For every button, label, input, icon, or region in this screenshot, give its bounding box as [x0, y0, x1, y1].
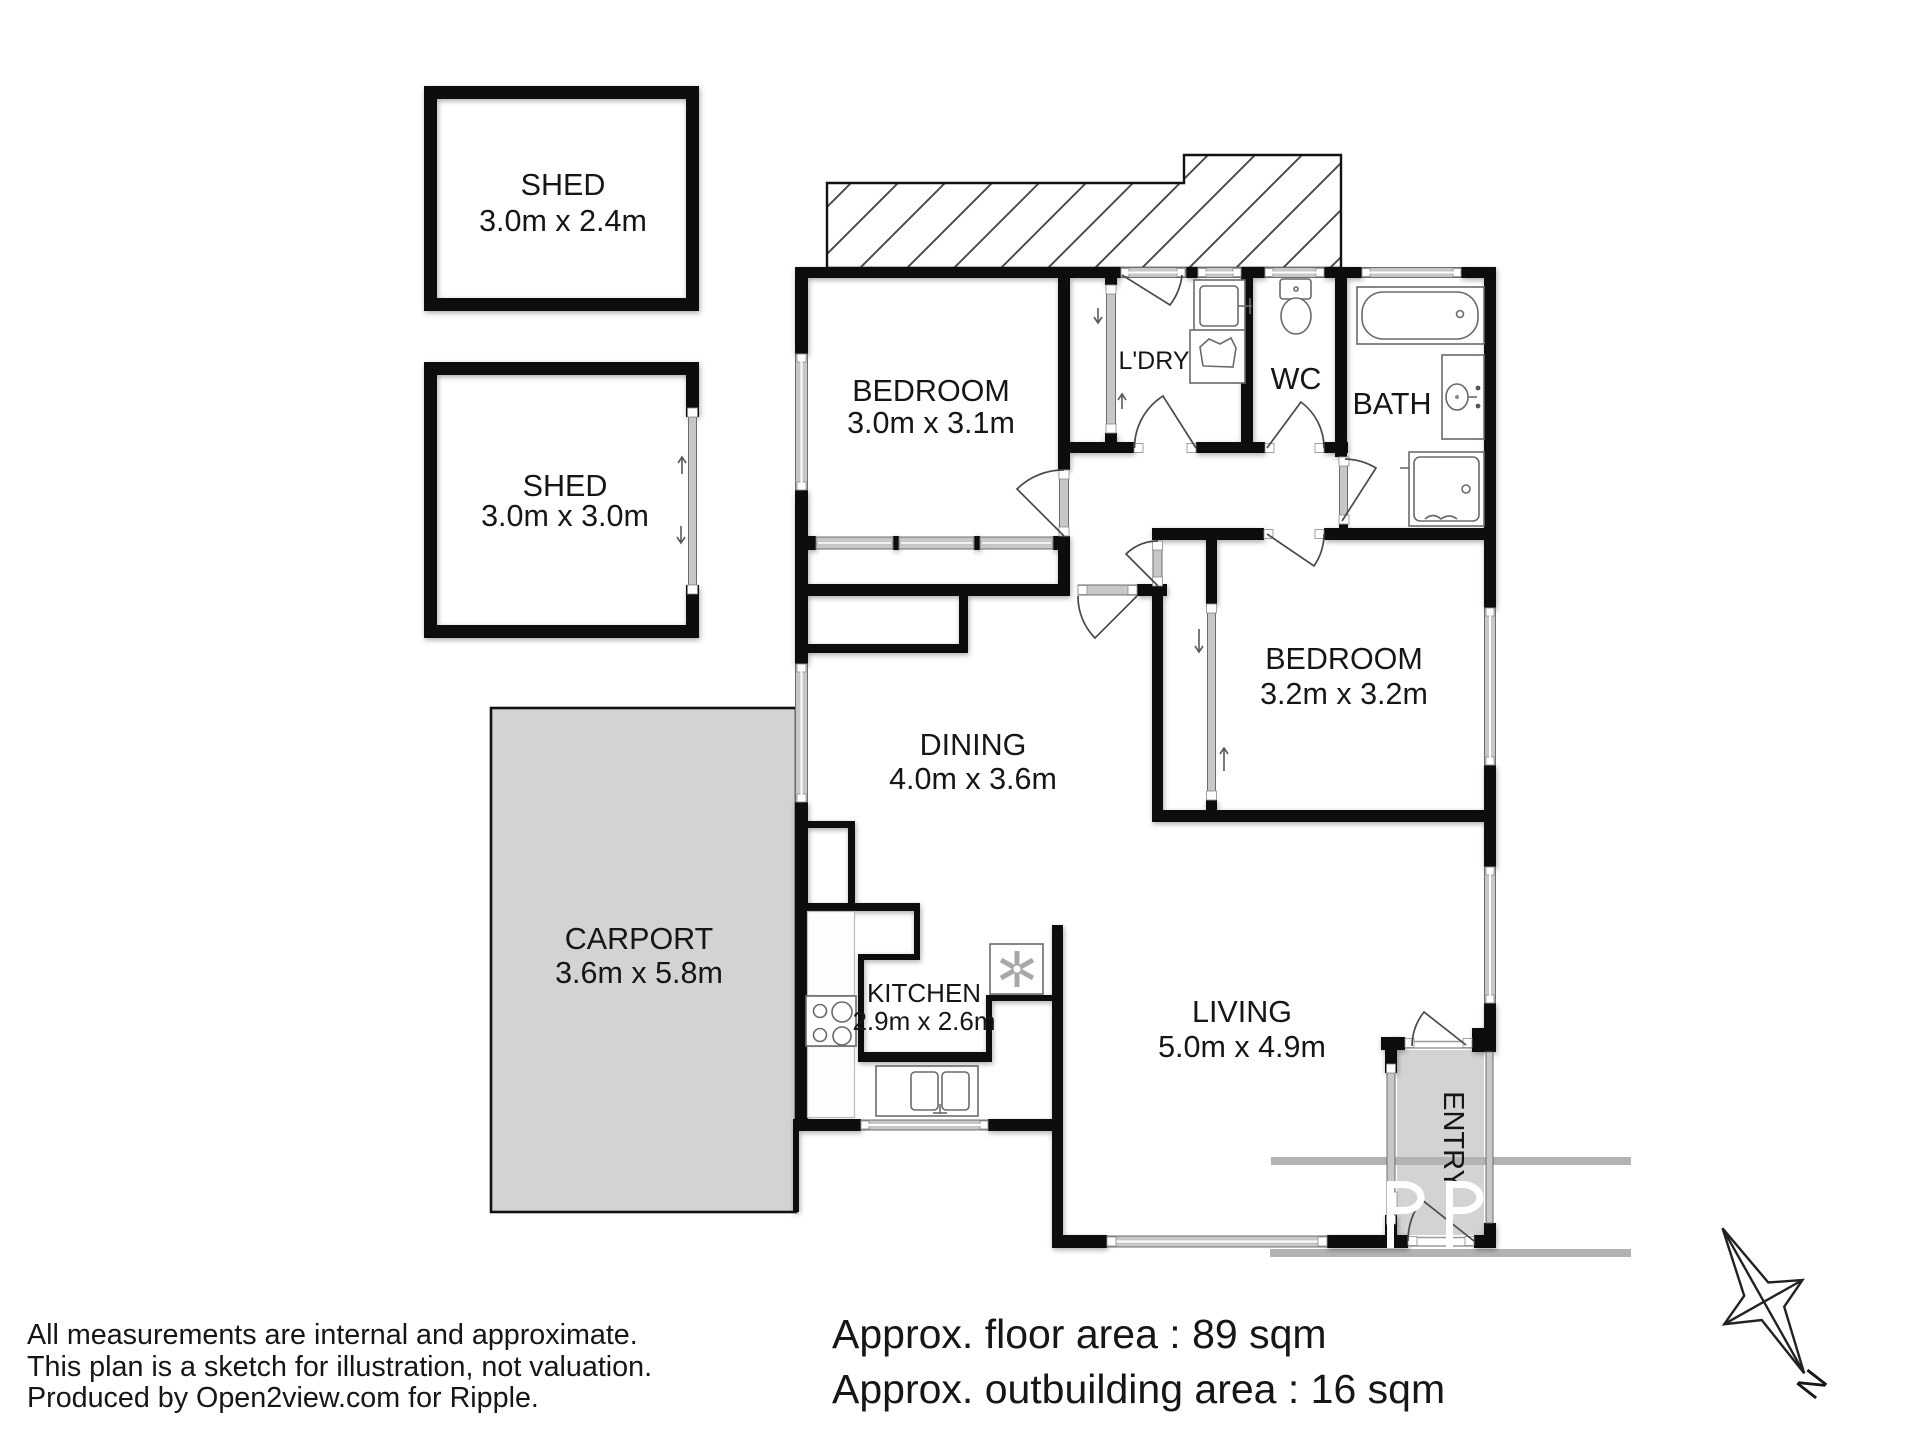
- svg-text:BATH: BATH: [1352, 387, 1431, 421]
- svg-text:SHED: SHED: [521, 168, 606, 202]
- svg-text:Produced by Open2view.com for: Produced by Open2view.com for Ripple.: [27, 1382, 539, 1414]
- svg-text:ENTRY: ENTRY: [1437, 1091, 1469, 1189]
- svg-text:KITCHEN: KITCHEN: [867, 978, 981, 1008]
- svg-text:All measurements are internal: All measurements are internal and approx…: [27, 1319, 638, 1351]
- svg-text:3.0m x 3.1m: 3.0m x 3.1m: [847, 406, 1015, 440]
- svg-text:3.0m x 3.0m: 3.0m x 3.0m: [481, 499, 649, 533]
- svg-text:Approx. floor area : 89 sqm: Approx. floor area : 89 sqm: [832, 1311, 1327, 1357]
- svg-text:Approx. outbuilding area : 16: Approx. outbuilding area : 16 sqm: [832, 1366, 1445, 1412]
- svg-text:3.0m x 2.4m: 3.0m x 2.4m: [479, 204, 647, 238]
- svg-text:SHED: SHED: [523, 469, 608, 503]
- svg-text:BEDROOM: BEDROOM: [1265, 642, 1423, 676]
- svg-text:LIVING: LIVING: [1192, 995, 1292, 1029]
- svg-text:5.0m x 4.9m: 5.0m x 4.9m: [1158, 1030, 1326, 1064]
- svg-text:This plan is a sketch for illu: This plan is a sketch for illustration, …: [27, 1351, 652, 1383]
- svg-text:3.6m x 5.8m: 3.6m x 5.8m: [555, 956, 723, 990]
- svg-text:4.0m x 3.6m: 4.0m x 3.6m: [889, 762, 1057, 796]
- svg-text:BEDROOM: BEDROOM: [852, 374, 1010, 408]
- svg-text:DINING: DINING: [920, 728, 1027, 762]
- svg-text:WC: WC: [1271, 362, 1322, 396]
- svg-text:CARPORT: CARPORT: [565, 922, 714, 956]
- svg-text:3.2m x 3.2m: 3.2m x 3.2m: [1260, 677, 1428, 711]
- svg-text:2.9m x 2.6m: 2.9m x 2.6m: [852, 1006, 995, 1036]
- svg-text:L'DRY: L'DRY: [1118, 347, 1189, 375]
